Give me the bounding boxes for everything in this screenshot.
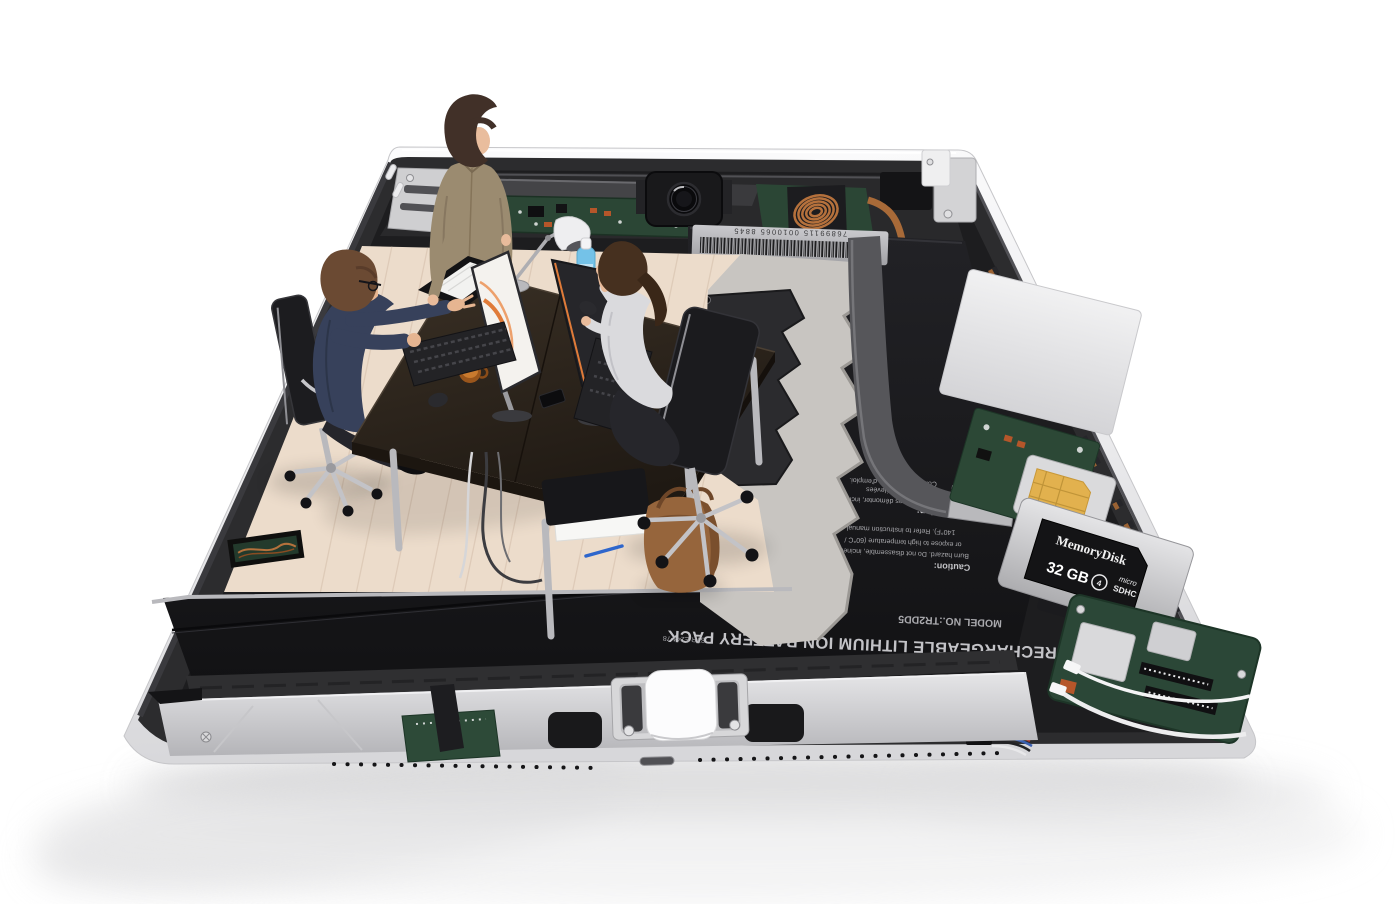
ic-chip bbox=[556, 204, 567, 213]
screw bbox=[624, 726, 634, 736]
man-hair bbox=[320, 249, 377, 311]
screw bbox=[927, 159, 933, 165]
ic-chip bbox=[528, 206, 544, 217]
home-button bbox=[645, 669, 717, 741]
home-button-assembly bbox=[611, 668, 749, 743]
woman-standing-hand-right bbox=[501, 234, 511, 246]
man-hand-keyboard bbox=[407, 333, 421, 347]
screw bbox=[407, 175, 414, 182]
foam-pad bbox=[744, 704, 804, 742]
woman-standing-hand bbox=[428, 295, 439, 306]
caution-title: Caution: bbox=[934, 561, 971, 573]
screw bbox=[730, 720, 740, 730]
charging-port bbox=[640, 757, 674, 766]
smd-component bbox=[544, 222, 552, 227]
screw bbox=[944, 210, 952, 218]
woman-seated-hand-desk bbox=[581, 316, 591, 326]
white-clip bbox=[922, 150, 950, 186]
smd-component bbox=[590, 208, 597, 213]
tablet-teardown-photo: 76899115 0010065 8845 MADE IN JAPAN UL C… bbox=[0, 0, 1400, 904]
foam-pad bbox=[548, 712, 602, 748]
photo-canvas: 76899115 0010065 8845 MADE IN JAPAN UL C… bbox=[0, 0, 1400, 904]
camera-module bbox=[636, 172, 732, 226]
smd-component bbox=[604, 211, 611, 216]
